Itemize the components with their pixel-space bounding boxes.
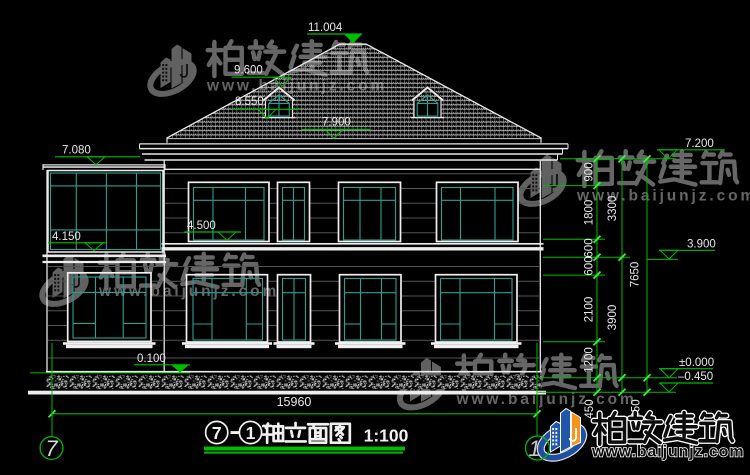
svg-text:0.100: 0.100 <box>137 353 166 365</box>
svg-text:7: 7 <box>45 436 58 461</box>
svg-text:±0.000: ±0.000 <box>679 357 714 369</box>
svg-text:www.baijunjz.com: www.baijunjz.com <box>576 188 750 205</box>
svg-text:www.baijunjz.com: www.baijunjz.com <box>98 283 279 300</box>
svg-text:www.baijunjz.com: www.baijunjz.com <box>591 444 745 461</box>
svg-text:3.900: 3.900 <box>687 239 716 251</box>
svg-text:7.200: 7.200 <box>685 138 714 150</box>
svg-text:4.500: 4.500 <box>187 220 216 232</box>
svg-text:–0.450: –0.450 <box>678 371 713 383</box>
svg-text:1: 1 <box>528 436 540 461</box>
svg-text:15960: 15960 <box>277 395 312 409</box>
svg-text:600: 600 <box>584 256 596 275</box>
svg-text:1: 1 <box>246 423 256 443</box>
svg-text:3900: 3900 <box>607 305 619 331</box>
svg-text:8.550: 8.550 <box>235 96 264 108</box>
svg-text:7.900: 7.900 <box>322 117 351 129</box>
svg-text:1:100: 1:100 <box>364 425 409 445</box>
svg-text:7650: 7650 <box>630 262 642 288</box>
svg-text:600: 600 <box>584 238 596 257</box>
svg-text:11.004: 11.004 <box>308 22 343 34</box>
svg-text:7.080: 7.080 <box>62 145 91 157</box>
svg-text:1800: 1800 <box>584 200 596 226</box>
svg-text:900: 900 <box>584 162 596 181</box>
svg-text:3300: 3300 <box>607 196 619 222</box>
svg-text:9.600: 9.600 <box>234 65 263 77</box>
svg-text:1200: 1200 <box>584 347 596 373</box>
svg-text:450: 450 <box>584 399 596 418</box>
svg-text:4.150: 4.150 <box>52 231 81 243</box>
svg-text:2100: 2100 <box>584 297 596 323</box>
svg-text:7: 7 <box>212 423 222 443</box>
